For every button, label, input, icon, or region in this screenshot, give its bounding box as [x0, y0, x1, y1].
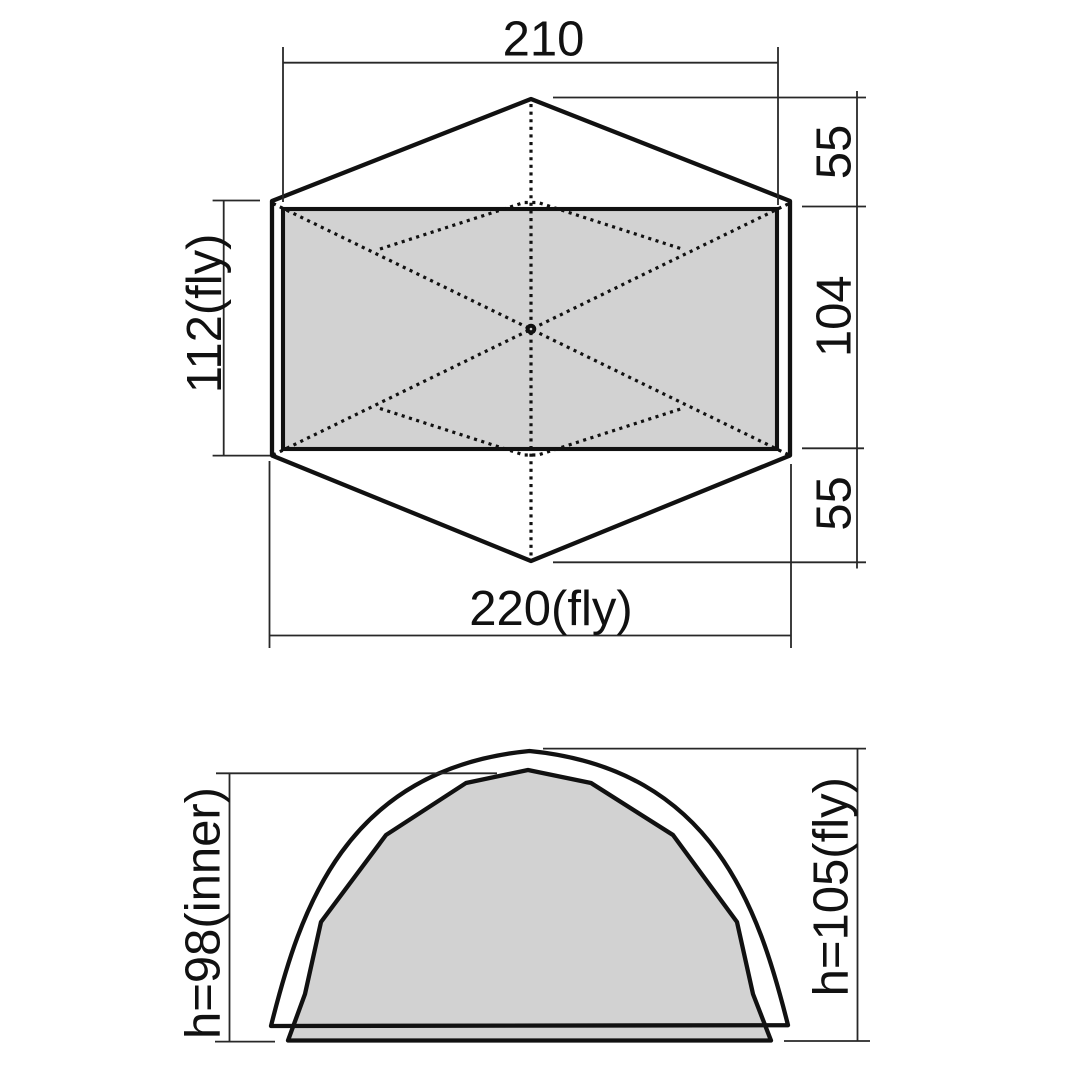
svg-text:104: 104 — [808, 275, 862, 357]
svg-text:h=98(inner): h=98(inner) — [177, 787, 231, 1039]
svg-text:h=105(fly): h=105(fly) — [805, 777, 859, 996]
svg-text:55: 55 — [808, 476, 862, 531]
svg-text:210: 210 — [503, 13, 585, 67]
svg-text:55: 55 — [808, 125, 862, 180]
svg-text:112(fly): 112(fly) — [178, 234, 232, 394]
svg-text:220(fly): 220(fly) — [469, 582, 632, 636]
